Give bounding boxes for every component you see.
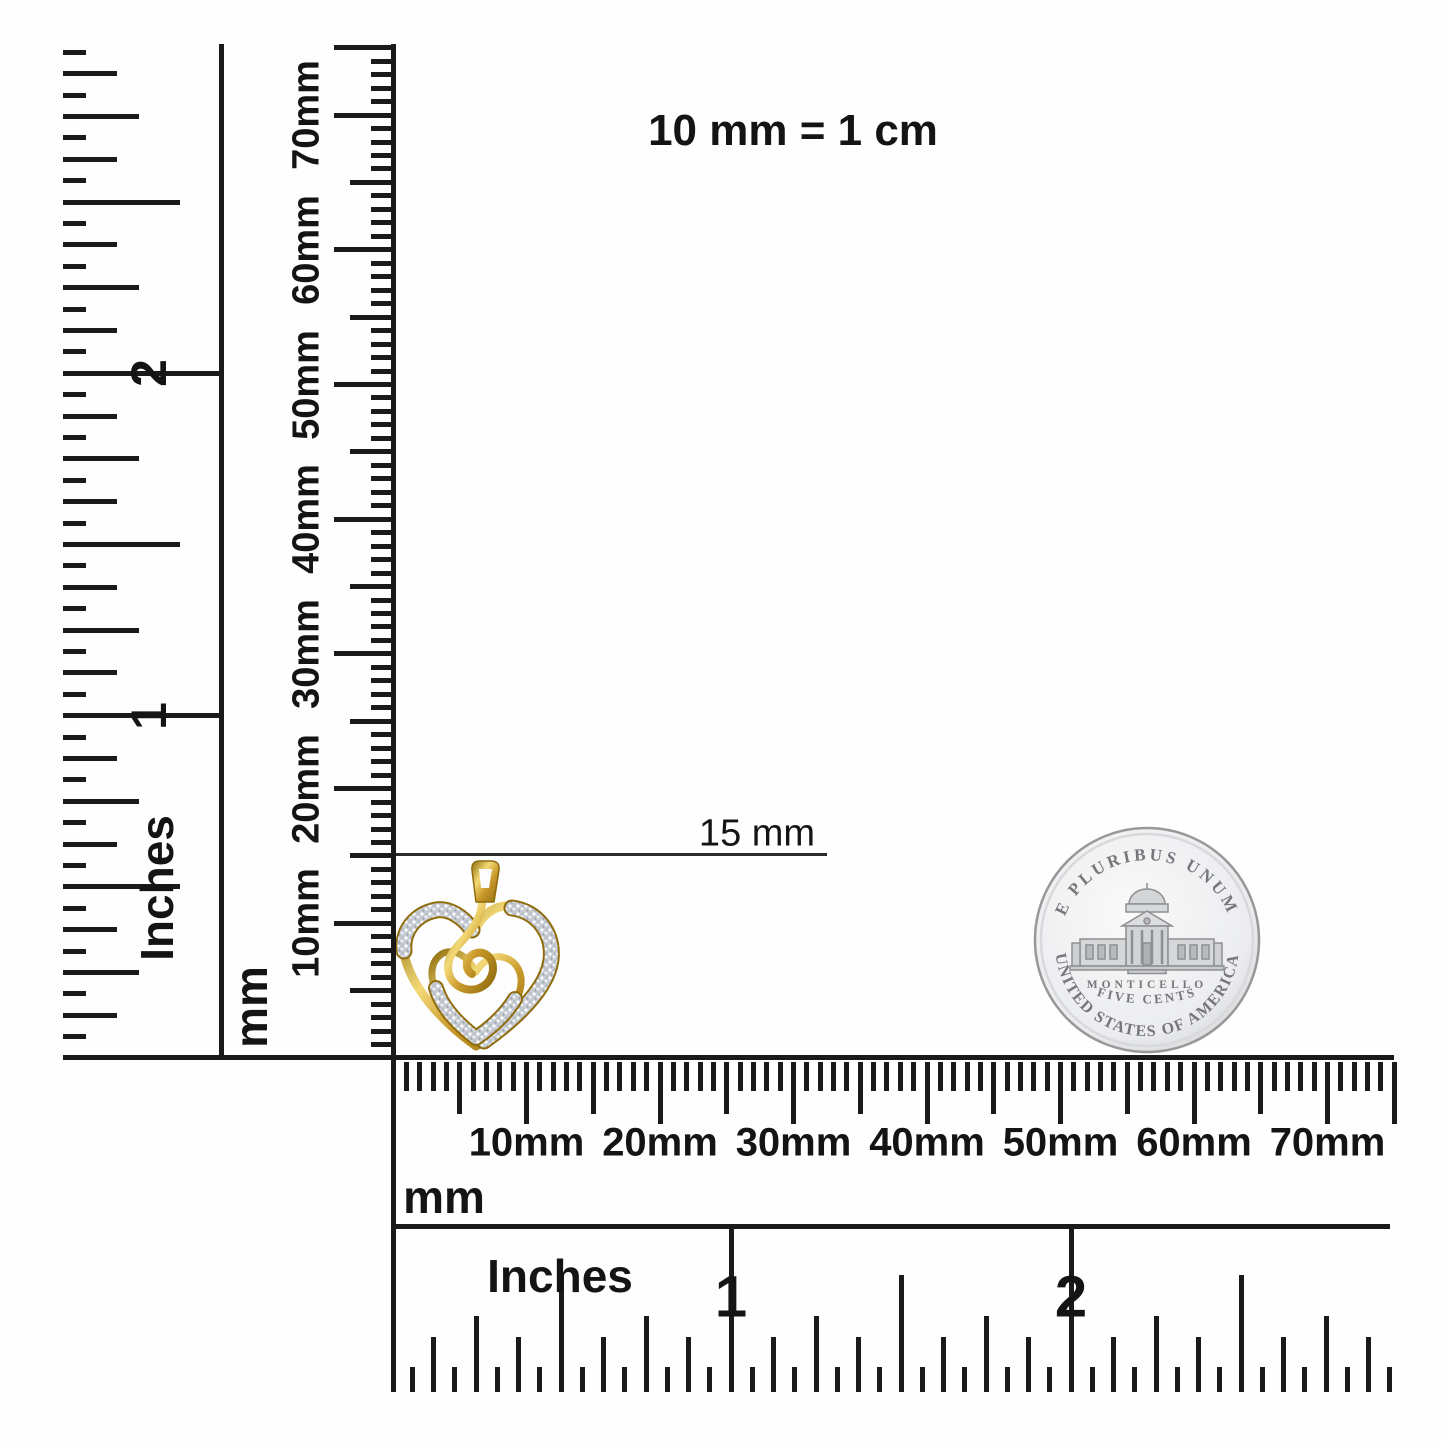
ruler-tick xyxy=(371,840,396,845)
ruler-tick xyxy=(371,705,396,710)
ruler-tick xyxy=(1205,1062,1210,1091)
ruler-tick xyxy=(658,1062,663,1124)
ruler-tick xyxy=(884,1062,889,1091)
ruler-tick xyxy=(371,867,396,872)
ruler-tick xyxy=(1325,1062,1330,1124)
ruler-tick xyxy=(724,1062,729,1114)
ruler-tick xyxy=(63,456,139,461)
ruler-tick xyxy=(371,288,396,293)
ruler-tick xyxy=(898,1062,903,1091)
ruler-tick xyxy=(371,638,396,643)
ruler-tick xyxy=(63,991,86,996)
ruler-tick xyxy=(371,140,396,145)
ruler-tick xyxy=(1045,1062,1050,1091)
ruler-tick xyxy=(452,1367,457,1392)
ruler-tick xyxy=(371,369,396,374)
ruler-tick xyxy=(631,1062,636,1091)
ruler-tick xyxy=(1111,1337,1116,1392)
left-mm-ruler-unit-label: mm xyxy=(224,966,278,1048)
ruler-tick xyxy=(991,1062,996,1114)
ruler-tick xyxy=(1138,1062,1143,1091)
ruler-tick xyxy=(1324,1316,1329,1392)
ruler-tick xyxy=(371,72,396,77)
ruler-tick xyxy=(941,1337,946,1392)
ruler-tick xyxy=(63,50,86,55)
ruler-mark-label: 1 xyxy=(120,702,178,730)
bottom-inch-ruler-unit-label: Inches xyxy=(487,1249,633,1303)
ruler-tick xyxy=(334,651,396,656)
ruler-mark-label: 50mm xyxy=(1003,1121,1119,1166)
ruler-tick xyxy=(371,193,396,198)
ruler-tick xyxy=(371,961,396,966)
ruler-tick xyxy=(856,1337,861,1392)
ruler-tick xyxy=(444,1062,449,1091)
ruler-tick xyxy=(484,1062,489,1091)
measurement-diagram: 10 mm = 1 cm 15 mm 12 10mm20mm30mm40mm50… xyxy=(0,0,1445,1445)
ruler-tick xyxy=(371,773,396,778)
ruler-tick xyxy=(63,735,86,740)
ruler-tick xyxy=(1005,1367,1010,1392)
ruler-tick xyxy=(63,93,86,98)
ruler-tick xyxy=(665,1367,670,1392)
ruler-mark-label: 40mm xyxy=(869,1121,985,1166)
ruler-tick xyxy=(371,1029,396,1034)
ruler-tick xyxy=(63,970,139,975)
ruler-tick xyxy=(371,544,396,549)
ruler-tick xyxy=(350,449,396,454)
ruler-tick xyxy=(63,349,86,354)
ruler-tick xyxy=(371,490,396,495)
ruler-tick xyxy=(698,1062,703,1091)
ruler-tick xyxy=(371,571,396,576)
ruler-tick xyxy=(1217,1367,1222,1392)
ruler-tick xyxy=(920,1367,925,1392)
ruler-tick xyxy=(63,927,117,932)
ruler-tick xyxy=(63,499,117,504)
ruler-tick xyxy=(1192,1062,1197,1124)
ruler-tick xyxy=(63,435,86,440)
ruler-mark-label: 1 xyxy=(715,1264,747,1331)
ruler-tick xyxy=(371,746,396,751)
ruler-mark-label: 20mm xyxy=(286,734,329,844)
ruler-tick xyxy=(551,1062,556,1091)
ruler-tick xyxy=(371,234,396,239)
ruler-tick xyxy=(371,207,396,212)
ruler-tick xyxy=(334,45,396,50)
ruler-tick xyxy=(1111,1062,1116,1091)
ruler-tick xyxy=(804,1062,809,1091)
ruler-tick xyxy=(350,315,396,320)
ruler-tick xyxy=(1125,1062,1130,1114)
ruler-tick xyxy=(686,1337,691,1392)
ruler-tick xyxy=(1312,1062,1317,1091)
ruler-tick xyxy=(371,557,396,562)
ruler-tick xyxy=(63,307,86,312)
ruler-mark-label: 70mm xyxy=(286,60,329,170)
ruler-tick xyxy=(771,1337,776,1392)
ruler-tick xyxy=(371,975,396,980)
ruler-tick xyxy=(371,422,396,427)
ruler-mark-label: 2 xyxy=(1055,1264,1087,1331)
ruler-tick xyxy=(899,1275,904,1392)
ruler-tick xyxy=(371,665,396,670)
ruler-tick xyxy=(1085,1062,1090,1091)
ruler-tick xyxy=(871,1062,876,1091)
ruler-mark-label: 50mm xyxy=(286,330,329,440)
ruler-tick xyxy=(1058,1062,1063,1124)
ruler-mark-label: 10mm xyxy=(469,1121,585,1166)
ruler-tick xyxy=(965,1062,970,1091)
nickel-coin-photo: E PLURIBUS UNUM MONTICELLO FIVE CENTS UN… xyxy=(1032,825,1262,1055)
ruler-tick xyxy=(371,1002,396,1007)
ruler-tick xyxy=(1047,1367,1052,1392)
ruler-mark-label: 10mm xyxy=(286,868,329,978)
ruler-tick xyxy=(63,756,117,761)
ruler-mark-label: 40mm xyxy=(286,464,329,574)
ruler-tick xyxy=(844,1062,849,1091)
ruler-tick xyxy=(835,1367,840,1392)
ruler-tick xyxy=(1132,1367,1137,1392)
ruler-tick xyxy=(417,1062,422,1091)
ruler-tick xyxy=(371,678,396,683)
ruler-tick xyxy=(371,1042,396,1047)
ruler-tick xyxy=(350,853,396,858)
ruler-mark-label: 2 xyxy=(120,359,178,387)
ruler-tick xyxy=(1071,1062,1076,1091)
ruler-tick xyxy=(334,247,396,252)
ruler-mark-label: 60mm xyxy=(286,195,329,305)
ruler-tick xyxy=(516,1337,521,1392)
ruler-tick xyxy=(1378,1062,1383,1091)
ruler-tick xyxy=(1258,1062,1263,1114)
ruler-tick xyxy=(471,1062,476,1091)
ruler-tick xyxy=(1018,1062,1023,1091)
ruler-tick xyxy=(63,777,86,782)
ruler-tick xyxy=(791,1062,796,1124)
ruler-tick xyxy=(334,786,396,791)
ruler-tick xyxy=(1151,1062,1156,1091)
ruler-tick xyxy=(63,949,86,954)
ruler-tick xyxy=(684,1062,689,1091)
ruler-tick xyxy=(371,355,396,360)
ruler-tick xyxy=(1175,1367,1180,1392)
bottom-mm-ruler-unit-label: mm xyxy=(403,1170,485,1224)
ruler-tick xyxy=(431,1062,436,1091)
ruler-tick xyxy=(63,820,86,825)
ruler-tick xyxy=(371,409,396,414)
ruler-tick xyxy=(410,1367,415,1392)
ruler-tick xyxy=(404,1062,409,1091)
ruler-tick xyxy=(877,1367,882,1392)
bottom-inch-ruler-topline xyxy=(391,1224,1390,1229)
ruler-tick xyxy=(644,1316,649,1392)
ruler-tick xyxy=(778,1062,783,1091)
ruler-tick xyxy=(750,1367,755,1392)
horizontal-baseline xyxy=(63,1055,1394,1060)
ruler-tick xyxy=(63,585,117,590)
ruler-tick xyxy=(1366,1337,1371,1392)
ruler-tick xyxy=(63,221,86,226)
ruler-tick xyxy=(371,153,396,158)
ruler-tick xyxy=(1392,1062,1397,1124)
ruler-tick xyxy=(371,86,396,91)
ruler-tick xyxy=(1298,1062,1303,1091)
left-inch-ruler-line xyxy=(219,44,224,1058)
ruler-tick xyxy=(371,800,396,805)
ruler-tick xyxy=(63,264,86,269)
ruler-tick xyxy=(371,880,396,885)
ruler-tick xyxy=(1285,1062,1290,1091)
ruler-tick xyxy=(371,530,396,535)
pendant-height-label: 15 mm xyxy=(699,813,815,856)
ruler-tick xyxy=(644,1062,649,1091)
ruler-tick xyxy=(1272,1062,1277,1091)
ruler-tick xyxy=(524,1062,529,1124)
ruler-tick xyxy=(350,584,396,589)
ruler-tick xyxy=(63,1013,117,1018)
ruler-tick xyxy=(1245,1062,1250,1091)
ruler-tick xyxy=(371,59,396,64)
ruler-tick xyxy=(63,842,117,847)
ruler-tick xyxy=(63,863,86,868)
ruler-tick xyxy=(1005,1062,1010,1091)
ruler-tick xyxy=(63,670,117,675)
ruler-tick xyxy=(63,692,86,697)
ruler-tick xyxy=(63,242,117,247)
ruler-tick xyxy=(63,135,86,140)
ruler-tick xyxy=(711,1062,716,1091)
ruler-tick xyxy=(334,382,396,387)
ruler-tick xyxy=(962,1367,967,1392)
ruler-tick xyxy=(334,517,396,522)
ruler-mark-label: 70mm xyxy=(1270,1121,1386,1166)
ruler-tick xyxy=(371,894,396,899)
left-inch-ruler-unit-label: Inches xyxy=(130,815,184,961)
ruler-tick xyxy=(371,463,396,468)
ruler-tick xyxy=(792,1367,797,1392)
ruler-tick xyxy=(63,563,86,568)
ruler-tick xyxy=(1026,1337,1031,1392)
ruler-tick xyxy=(63,200,180,205)
ruler-tick xyxy=(371,328,396,333)
ruler-tick xyxy=(63,628,139,633)
ruler-tick xyxy=(63,906,86,911)
ruler-tick xyxy=(1165,1062,1170,1091)
ruler-tick xyxy=(371,692,396,697)
ruler-tick xyxy=(751,1062,756,1091)
ruler-tick xyxy=(63,649,86,654)
ruler-tick xyxy=(580,1367,585,1392)
ruler-tick xyxy=(601,1337,606,1392)
ruler-tick xyxy=(764,1062,769,1091)
ruler-tick xyxy=(1218,1062,1223,1091)
ruler-tick xyxy=(334,113,396,118)
ruler-tick xyxy=(371,732,396,737)
ruler-tick xyxy=(938,1062,943,1091)
ruler-tick xyxy=(63,157,117,162)
ruler-tick xyxy=(63,328,117,333)
ruler-tick xyxy=(63,71,117,76)
ruler-tick xyxy=(63,392,86,397)
ruler-tick xyxy=(63,606,86,611)
ruler-tick xyxy=(371,827,396,832)
ruler-tick xyxy=(371,261,396,266)
ruler-tick xyxy=(371,611,396,616)
ruler-tick xyxy=(951,1062,956,1091)
ruler-tick xyxy=(1196,1337,1201,1392)
ruler-tick xyxy=(63,799,139,804)
ruler-tick xyxy=(371,624,396,629)
ruler-tick xyxy=(63,114,139,119)
ruler-tick xyxy=(1345,1367,1350,1392)
ruler-tick xyxy=(371,126,396,131)
ruler-tick xyxy=(831,1062,836,1091)
ruler-tick xyxy=(707,1367,712,1392)
scale-note: 10 mm = 1 cm xyxy=(648,106,938,156)
ruler-tick xyxy=(1178,1062,1183,1091)
ruler-tick xyxy=(63,542,180,547)
ruler-tick xyxy=(1387,1367,1392,1392)
ruler-tick xyxy=(371,99,396,104)
ruler-tick xyxy=(474,1316,479,1392)
ruler-tick xyxy=(63,521,86,526)
ruler-tick xyxy=(350,719,396,724)
ruler-tick xyxy=(577,1062,582,1091)
ruler-tick xyxy=(818,1062,823,1091)
ruler-tick xyxy=(1281,1337,1286,1392)
ruler-tick xyxy=(371,1015,396,1020)
ruler-tick xyxy=(1154,1316,1159,1392)
ruler-tick xyxy=(350,180,396,185)
ruler-tick xyxy=(1260,1367,1265,1392)
ruler-mark-label: 20mm xyxy=(602,1121,718,1166)
ruler-tick xyxy=(814,1316,819,1392)
ruler-tick xyxy=(371,503,396,508)
ruler-mark-label: 60mm xyxy=(1136,1121,1252,1166)
ruler-tick xyxy=(63,414,117,419)
ruler-tick xyxy=(1338,1062,1343,1091)
ruler-tick xyxy=(495,1367,500,1392)
ruler-tick xyxy=(591,1062,596,1114)
ruler-tick xyxy=(371,166,396,171)
ruler-tick xyxy=(371,476,396,481)
ruler-tick xyxy=(564,1062,569,1091)
ruler-tick xyxy=(371,934,396,939)
ruler-tick xyxy=(371,598,396,603)
ruler-tick xyxy=(617,1062,622,1091)
ruler-tick xyxy=(371,813,396,818)
ruler-tick xyxy=(911,1062,916,1091)
ruler-tick xyxy=(371,907,396,912)
heart-pendant-photo xyxy=(396,856,564,1056)
ruler-tick xyxy=(371,220,396,225)
ruler-tick xyxy=(925,1062,930,1124)
ruler-tick xyxy=(63,1034,86,1039)
ruler-tick xyxy=(1031,1062,1036,1091)
ruler-tick xyxy=(671,1062,676,1091)
ruler-tick xyxy=(334,921,396,926)
ruler-tick xyxy=(63,478,86,483)
ruler-tick xyxy=(371,948,396,953)
ruler-tick xyxy=(63,285,139,290)
ruler-tick xyxy=(511,1062,516,1091)
ruler-tick xyxy=(537,1062,542,1091)
ruler-tick xyxy=(978,1062,983,1091)
ruler-tick xyxy=(537,1367,542,1392)
ruler-tick xyxy=(858,1062,863,1114)
ruler-tick xyxy=(984,1316,989,1392)
ruler-tick xyxy=(457,1062,462,1114)
ruler-tick xyxy=(1302,1367,1307,1392)
ruler-tick xyxy=(350,988,396,993)
ruler-tick xyxy=(1090,1367,1095,1392)
ruler-tick xyxy=(738,1062,743,1091)
ruler-tick xyxy=(1239,1275,1244,1392)
ruler-tick xyxy=(1365,1062,1370,1091)
ruler-mark-label: 30mm xyxy=(736,1121,852,1166)
ruler-tick xyxy=(622,1367,627,1392)
ruler-tick xyxy=(371,342,396,347)
ruler-tick xyxy=(63,178,86,183)
ruler-tick xyxy=(1232,1062,1237,1091)
ruler-tick xyxy=(371,436,396,441)
ruler-tick xyxy=(497,1062,502,1091)
ruler-tick xyxy=(371,274,396,279)
ruler-tick xyxy=(371,395,396,400)
ruler-tick xyxy=(604,1062,609,1091)
ruler-tick xyxy=(371,759,396,764)
ruler-tick xyxy=(1352,1062,1357,1091)
ruler-tick xyxy=(1098,1062,1103,1091)
ruler-mark-label: 30mm xyxy=(286,599,329,709)
ruler-tick xyxy=(431,1337,436,1392)
ruler-tick xyxy=(371,301,396,306)
